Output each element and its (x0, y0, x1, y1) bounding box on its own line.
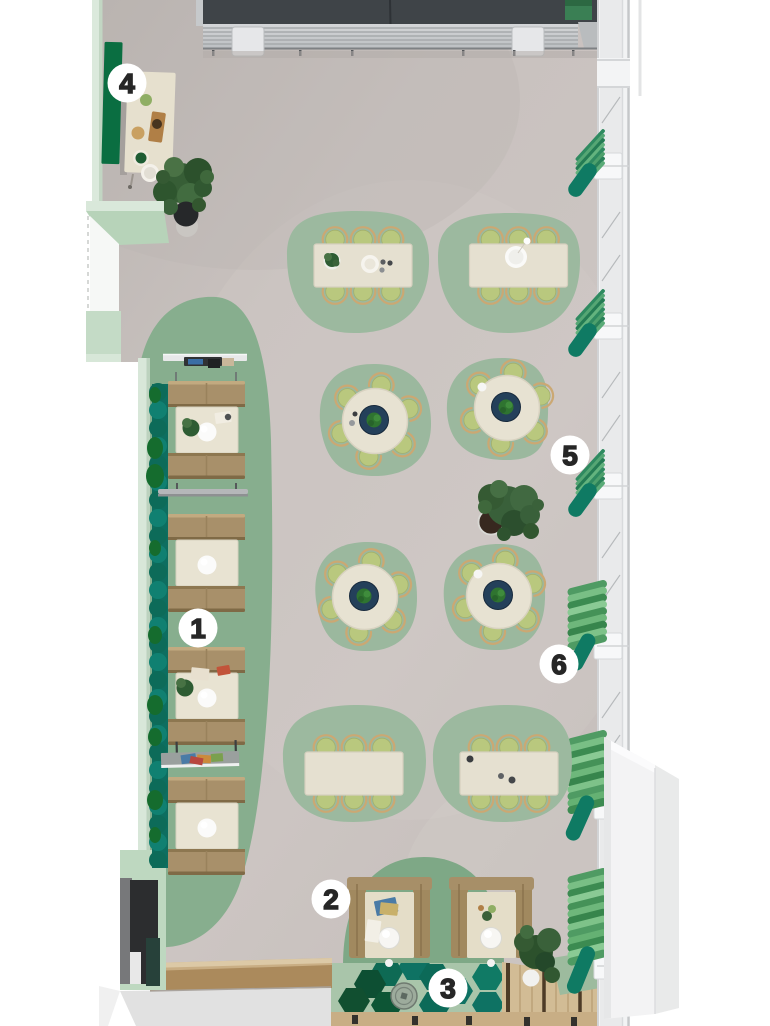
svg-text:4: 4 (119, 68, 135, 99)
svg-text:6: 6 (551, 649, 567, 680)
svg-text:2: 2 (323, 884, 339, 915)
svg-text:5: 5 (562, 440, 578, 471)
svg-text:1: 1 (190, 613, 206, 644)
svg-text:3: 3 (440, 973, 456, 1004)
